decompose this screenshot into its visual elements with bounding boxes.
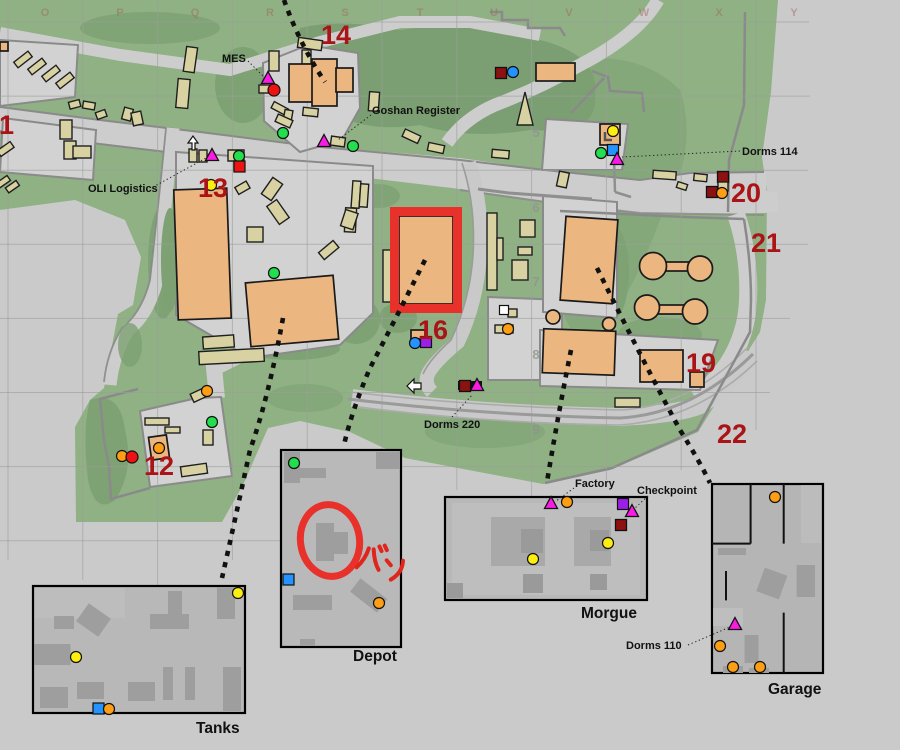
svg-text:21: 21	[751, 228, 781, 258]
svg-text:Goshan Register: Goshan Register	[372, 105, 461, 117]
svg-text:Dorms 110: Dorms 110	[626, 640, 682, 652]
svg-text:Dorms 220: Dorms 220	[424, 419, 480, 431]
svg-text:12: 12	[144, 451, 174, 481]
svg-text:P: P	[116, 7, 123, 19]
svg-text:V: V	[565, 7, 573, 19]
svg-text:S: S	[341, 7, 348, 19]
svg-text:T: T	[417, 7, 424, 19]
svg-text:Q: Q	[191, 7, 200, 19]
svg-text:Garage: Garage	[768, 681, 822, 698]
svg-text:MES: MES	[222, 53, 246, 65]
svg-text:Dorms 114: Dorms 114	[742, 146, 799, 158]
svg-text:R: R	[266, 7, 274, 19]
svg-text:13: 13	[198, 173, 228, 203]
svg-text:20: 20	[731, 178, 761, 208]
svg-text:Checkpoint: Checkpoint	[637, 485, 697, 497]
svg-text:22: 22	[717, 419, 747, 449]
svg-text:U: U	[490, 7, 498, 19]
svg-text:1: 1	[0, 110, 14, 140]
svg-text:16: 16	[418, 315, 448, 345]
svg-text:O: O	[41, 7, 50, 19]
svg-text:Factory: Factory	[575, 478, 616, 490]
svg-text:7: 7	[532, 274, 539, 289]
svg-text:Depot: Depot	[353, 648, 397, 665]
svg-text:Y: Y	[790, 7, 798, 19]
svg-text:14: 14	[321, 20, 351, 50]
svg-text:Tanks: Tanks	[196, 720, 240, 737]
svg-text:5: 5	[532, 125, 539, 140]
svg-text:8: 8	[532, 347, 539, 362]
svg-text:19: 19	[686, 348, 716, 378]
svg-text:OLI Logistics: OLI Logistics	[88, 183, 158, 195]
svg-text:Morgue: Morgue	[581, 605, 637, 622]
svg-text:9: 9	[532, 422, 539, 437]
svg-text:W: W	[639, 7, 650, 19]
svg-text:X: X	[715, 7, 723, 19]
svg-text:6: 6	[532, 200, 539, 215]
